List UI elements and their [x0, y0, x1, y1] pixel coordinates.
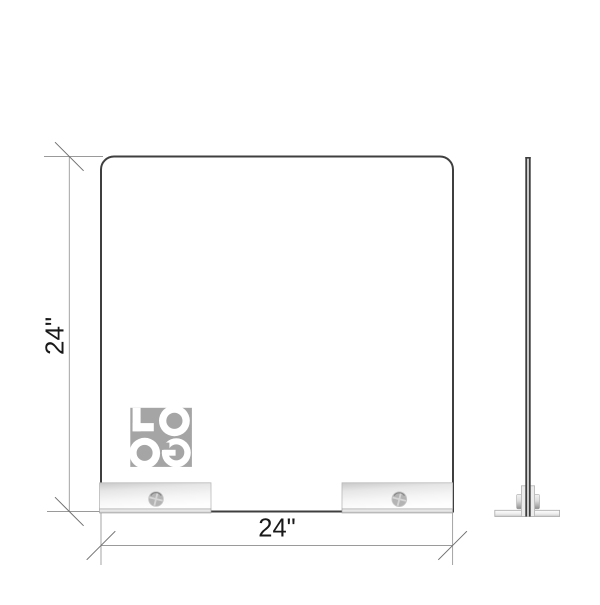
svg-text:24": 24" — [40, 317, 70, 355]
svg-text:24": 24" — [258, 515, 295, 543]
